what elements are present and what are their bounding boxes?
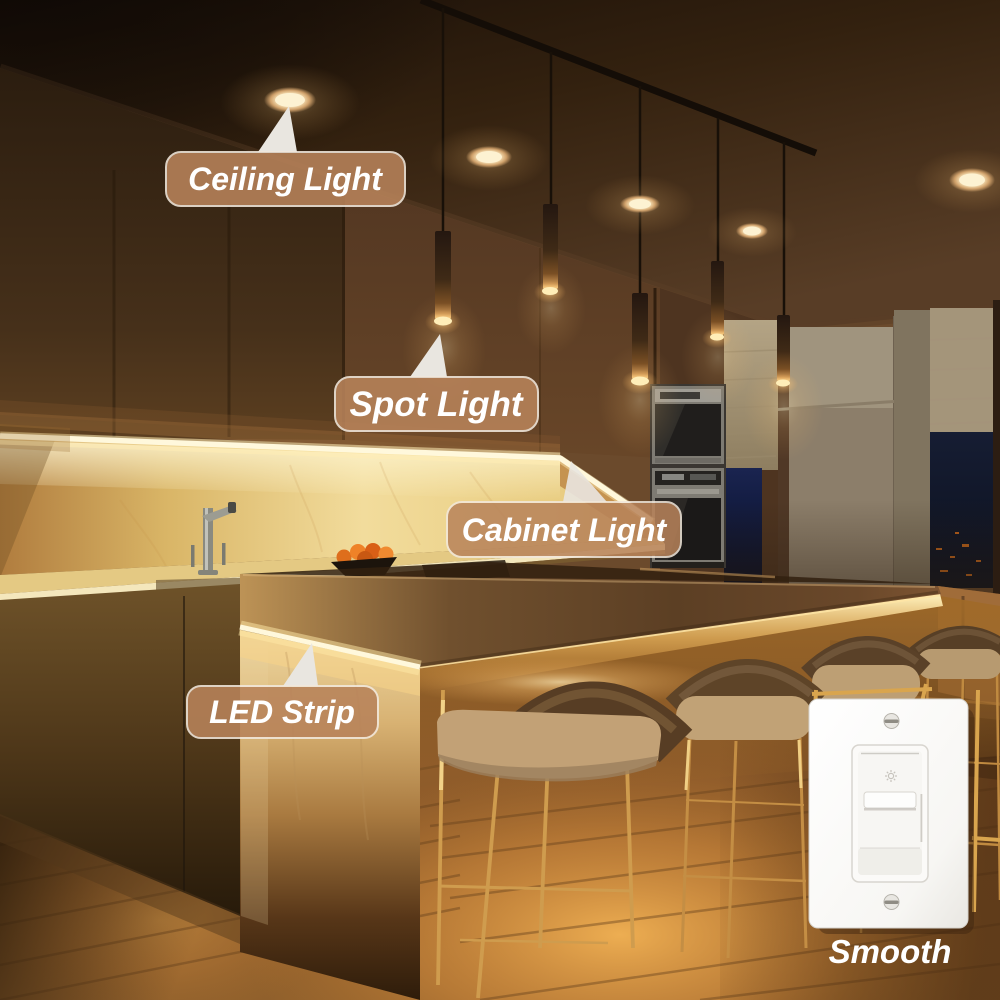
svg-text:Spot Light: Spot Light bbox=[349, 385, 523, 424]
svg-text:Cabinet Light: Cabinet Light bbox=[462, 512, 668, 548]
svg-text:Ceiling Light: Ceiling Light bbox=[188, 161, 383, 197]
svg-text:LED Strip: LED Strip bbox=[209, 694, 355, 730]
svg-text:Smooth: Smooth bbox=[829, 933, 952, 970]
